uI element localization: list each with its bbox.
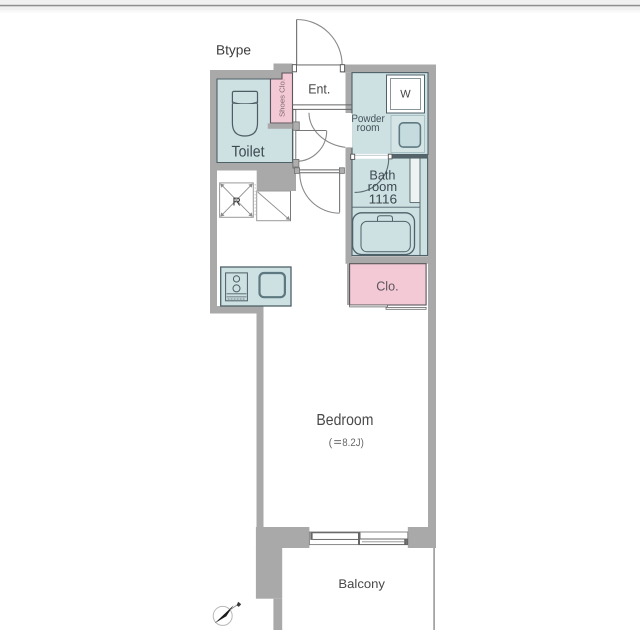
svg-text:Bedroom: Bedroom [316,412,373,429]
svg-text:Shoes Clo.: Shoes Clo. [278,79,287,117]
svg-text:Ent.: Ent. [308,82,330,97]
svg-text:Btype: Btype [216,42,251,57]
svg-text:R: R [232,196,240,208]
svg-text:Toilet: Toilet [232,144,266,161]
svg-text:1116: 1116 [369,192,398,207]
svg-text:Clo.: Clo. [376,278,398,293]
svg-text:(: ( [329,437,333,449]
svg-text:room: room [357,122,380,134]
svg-text:W: W [400,89,411,101]
svg-text:Balcony: Balcony [338,577,385,591]
svg-text:8.2J): 8.2J) [342,437,364,449]
